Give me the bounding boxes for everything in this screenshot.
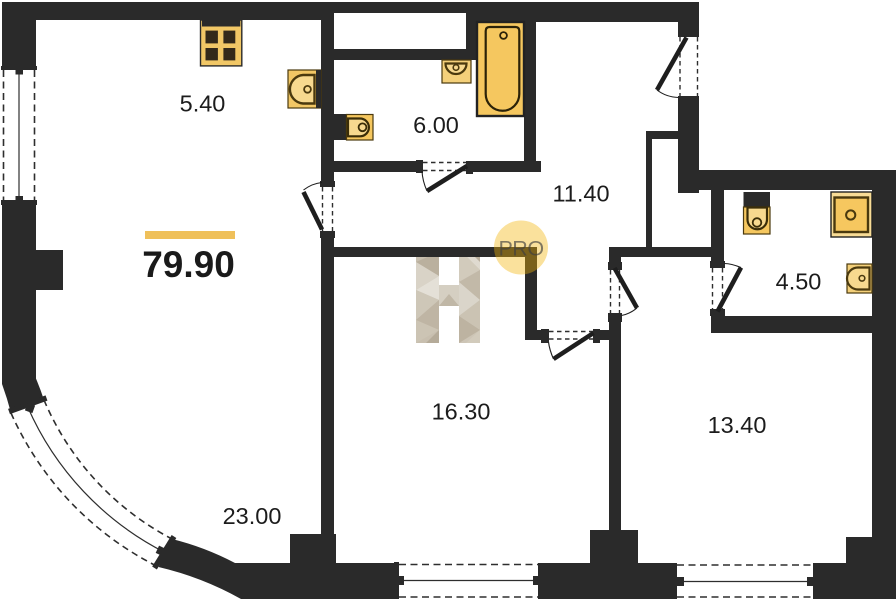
svg-text:11.40: 11.40 <box>552 181 609 207</box>
svg-text:PRO: PRO <box>498 237 543 261</box>
svg-text:23.00: 23.00 <box>223 503 282 529</box>
svg-text:5.40: 5.40 <box>180 91 226 117</box>
svg-text:13.40: 13.40 <box>708 412 767 438</box>
svg-text:6.00: 6.00 <box>413 112 459 138</box>
svg-text:16.30: 16.30 <box>432 399 491 425</box>
svg-text:4.50: 4.50 <box>776 269 822 295</box>
svg-text:79.90: 79.90 <box>142 244 235 285</box>
